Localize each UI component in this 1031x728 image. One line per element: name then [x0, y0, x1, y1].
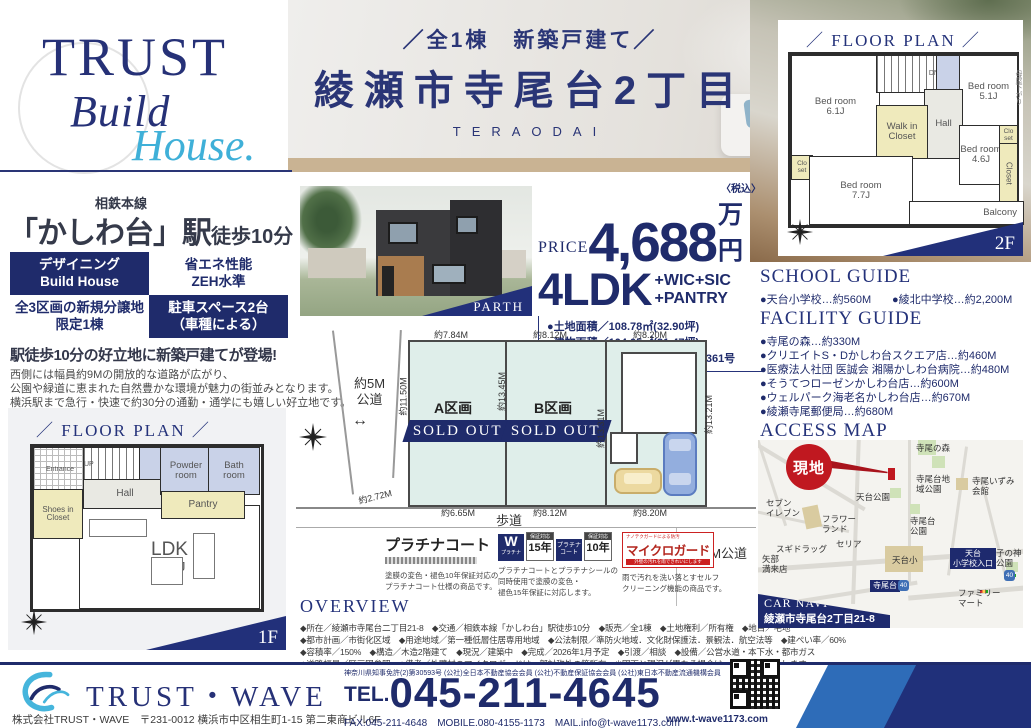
facility-guide-heading: FACILITY GUIDE — [760, 308, 922, 330]
floorplan-2f-heading: FLOOR PLAN — [806, 26, 981, 51]
room-bedroom2: Bed room5.1J — [959, 55, 1018, 129]
dim-c-right: 約13.21M — [702, 395, 715, 434]
station-name-row: 「かしわ台」駅徒歩10分 — [8, 208, 293, 252]
sofa-icon — [89, 519, 147, 537]
map-label-chiikipark: 寺尾台地域公園 — [916, 474, 956, 494]
floorplan-1f-drawing: LDK18.9J Entrance UP Hall Powder room Ba… — [30, 444, 264, 612]
footer-contacts: FAX.045-211-4648 MOBILE.080-4155-1173 MA… — [344, 714, 680, 728]
badge-lots: 全3区画の新規分譲地限定1棟 — [10, 295, 149, 338]
lot-a-label: A区画 — [434, 398, 472, 418]
sidewalk-label: 歩道 — [496, 510, 522, 529]
house-window1 — [388, 222, 418, 244]
lot-a-sold: SOLD OUT — [402, 420, 513, 442]
dim-top-a: 約7.84M — [434, 328, 468, 341]
microguard-desc2: クリーニング機能の商品です。 — [622, 583, 714, 594]
lot-c-porch — [610, 432, 638, 464]
map-label-famima: ファミリー マート — [958, 588, 1001, 608]
w-badge: W プラチナ — [498, 534, 524, 561]
kitchen-icon — [193, 533, 215, 579]
road-left-label: 約5M 公道 — [354, 376, 385, 409]
house-door — [382, 266, 394, 296]
room-walkin-closet: Walk in Closet — [876, 105, 928, 159]
staircase-up: UP — [83, 447, 143, 483]
room-bedroom3: Bed room4.6J — [959, 125, 1003, 185]
site-marker — [888, 468, 895, 480]
room-closet-right: Closet — [999, 143, 1018, 203]
footer-stripe-corner — [980, 665, 1031, 728]
overview-heading: OVERVIEW — [300, 596, 411, 617]
width-arrow-icon: ↔ — [352, 412, 368, 430]
brand-house: House. — [132, 120, 255, 171]
price-amount: 4,688 — [588, 218, 716, 268]
house-window3 — [432, 264, 466, 284]
header-subtitle: ／全1棟 新築戸建て／ — [300, 24, 760, 54]
price-opt2: +PANTRY — [655, 290, 731, 308]
room-entrance: Entrance — [33, 447, 87, 493]
map-label-seria: セリア — [836, 539, 862, 549]
compass-icon — [298, 422, 328, 452]
school-item-1: ●天台小学校…約560M — [760, 291, 871, 307]
room-hall-2f: Hall — [924, 89, 963, 159]
qr-code — [730, 659, 780, 709]
microguard-logo-box: ナノテクガードによる防汚 マイクロガード 外壁の汚れを雨できれいにします — [622, 532, 714, 568]
warranty-platinum: プラチナコート 塗膜の変色・褪色10年保証対応の プラチナコート仕様の商品です。 — [385, 534, 490, 592]
overview-line2: ◆都市計画／市街化区域 ◆用途地域／第一種低層住居専用地域 ◆公法制限／準防火地… — [300, 634, 846, 646]
room-powder: Powder room — [160, 447, 212, 495]
badge-10y: 保証対応 10年 — [584, 532, 612, 561]
map-park — [910, 504, 920, 514]
compass-icon — [20, 608, 48, 636]
footer-company-logo: TRUST・WAVE — [86, 673, 327, 715]
site-circle-label: 現地 — [793, 457, 825, 478]
dim-top-b: 約8.12M — [533, 328, 567, 341]
school-item-2: ●綾北中学校…約2,200M — [892, 291, 1012, 307]
badge-15y: 保証対応 15年 — [526, 532, 554, 561]
car-blue — [663, 432, 697, 496]
warranty-microguard: ナノテクガードによる防汚 マイクロガード 外壁の汚れを雨できれいにします 雨で汚… — [622, 532, 714, 594]
microguard-name: マイクロガード — [626, 540, 710, 559]
map-label-konokami: 子の神 公園 — [996, 548, 1022, 568]
exterior-render: PARTH — [300, 186, 532, 316]
dim-b-right: 約13.31M — [594, 409, 607, 448]
flyer-page: TRUST Build House. ／全1棟 新築戸建て／ 綾瀬市寺尾台2丁目… — [0, 0, 1031, 728]
room-pantry: Pantry — [161, 491, 245, 519]
floorplan-2f-drawing: Bed room6.1J DN Bed room5.1J Hall Walk i… — [788, 52, 1019, 228]
map-badge-teraodai: 寺尾台 — [870, 580, 900, 592]
page-title: 綾瀬市寺尾台2丁目 — [300, 58, 760, 116]
footer-company-address: 株式会社TRUST・WAVE 〒231-0012 横浜市中区相生町1-15 第二… — [12, 712, 381, 727]
header-title-block: ／全1棟 新築戸建て／ 綾瀬市寺尾台2丁目 TERAODAI — [300, 24, 760, 139]
room-bedroom1: Bed room6.1J — [791, 55, 880, 159]
price-opt1: +WIC+SIC — [655, 272, 731, 290]
map-label-seven: セブン イレブン — [766, 498, 800, 518]
access-map: 現地 寺尾の森 寺尾台地域公園 寺尾いずみ会館 天台公園 寺尾台公園 セブン イ… — [758, 440, 1023, 628]
footer-tel-row: TEL. 045-211-4645 — [344, 675, 661, 711]
tel-number: 045-211-4645 — [390, 675, 661, 711]
badge-platinum-coat: プラチナコート — [556, 539, 582, 561]
render-caption: PARTH — [473, 299, 532, 316]
school-guide-heading: SCHOOL GUIDE — [760, 266, 911, 288]
site-plan: 約5M 公道 ↔ A区画 SOLD OUT B区画 SOLD OUT 約7.84… — [296, 330, 756, 530]
overview-line1: ◆所在／綾瀬市寺尾台二丁目21-8 ◆交通／相鉄本線「かしわ台」駅徒歩10分 ◆… — [300, 622, 790, 634]
sidewalk-strip: 歩道 — [296, 507, 756, 528]
warranty-w15: W プラチナ 保証対応 15年 プラチナコート 保証対応 10年 プラチナコート… — [498, 532, 616, 598]
car-navi-address: 綾瀬市寺尾台2丁目21-8 — [758, 611, 890, 626]
floor-label-1f: 1F — [146, 616, 286, 650]
map-label-yabe: 矢部 満来店 — [762, 554, 788, 574]
room-shoes-closet: Shoes in Closet — [33, 489, 83, 539]
badge-parking: 駐車スペース2台（車種による） — [149, 295, 288, 338]
compass-icon — [786, 218, 814, 246]
platinum-desc1: 塗膜の変色・褪色10年保証対応の — [385, 570, 490, 581]
catch-headline: 駅徒歩10分の好立地に新築戸建てが登場! — [10, 344, 277, 365]
price-unit: 万円 — [718, 195, 764, 267]
facility-item: ●綾瀬寺尾郵便局…約680M — [760, 403, 893, 419]
overview-line3: ◆容積率／150% ◆構造／木造2階建て ◆現況／建築中 ◆完成／2026年1月… — [300, 646, 815, 658]
car-beige — [614, 468, 662, 494]
price-ldk: 4LDK — [538, 269, 652, 312]
footer-web: www.t-wave1173.com — [666, 714, 768, 725]
wave-logo-icon — [16, 671, 78, 713]
platinum-coat-bar — [385, 557, 477, 564]
staircase-dn: DN — [876, 55, 940, 93]
station-name: 「かしわ台」駅 — [8, 217, 211, 250]
map-label-tendaisho: 天台小 — [892, 555, 918, 565]
map-label-tendaipark: 天台公園 — [856, 492, 890, 502]
site-circle: 現地 — [786, 444, 832, 490]
station-walk: 徒歩10分 — [211, 226, 293, 248]
microguard-strip: 外壁の汚れを雨できれいにします — [626, 559, 710, 565]
room-hall-1f: Hall — [83, 479, 167, 509]
badge-zeh: 省エネ性能ZEH水準 — [149, 252, 288, 295]
tel-label: TEL. — [344, 683, 390, 711]
brand-name: TRUST — [42, 26, 228, 88]
price-tax: 〈税込〉 — [721, 180, 761, 195]
bg-house-shape — [308, 248, 366, 278]
dim-bot-0: 約2.72M — [357, 486, 393, 507]
map-label-teraodaipark: 寺尾台公園 — [910, 516, 942, 536]
platinum-coat-logo: プラチナコート — [385, 534, 490, 555]
dim-top-c: 約8.20M — [633, 328, 667, 341]
route-shield-icon: 40 — [898, 580, 909, 591]
floorplan-1f-heading: FLOOR PLAN — [36, 416, 211, 441]
footer: TRUST・WAVE 株式会社TRUST・WAVE 〒231-0012 横浜市中… — [0, 665, 1031, 728]
w-desc1: プラチナコートとプラチナシールの — [498, 565, 616, 576]
table-icon — [151, 557, 183, 585]
w-desc3: 褪色15年保証に対応します。 — [498, 587, 616, 598]
brand-logo: TRUST Build House. — [14, 12, 284, 168]
microguard-desc1: 雨で汚れを洗い落とすセルフ — [622, 572, 714, 583]
header-romaji: TERAODAI — [300, 124, 760, 139]
header-underline — [0, 170, 292, 172]
room-bedroom4: Bed room7.7J — [809, 156, 913, 225]
map-label-izumi: 寺尾いずみ会館 — [972, 476, 1016, 496]
platinum-desc2: プラチナコート仕様の商品です。 — [385, 581, 490, 592]
dim-b-left: 約13.45M — [495, 372, 508, 411]
map-label-sugi: スギドラッグ — [776, 544, 827, 554]
map-label-teraonomori: 寺尾の森 — [916, 443, 950, 453]
room-balcony: Balcony — [909, 201, 1024, 225]
lot-c-house-footprint — [621, 352, 697, 434]
map-label-flower: フラワー ランド — [822, 514, 856, 534]
map-park — [890, 488, 901, 498]
map-badge-iriguchi: 天台 小学校入口 — [950, 548, 996, 569]
map-building — [802, 505, 822, 530]
w-desc2: 同時使用で塗膜の変色・ — [498, 576, 616, 587]
map-park — [932, 456, 945, 468]
dim-a-left: 約11.50M — [397, 377, 410, 415]
access-map-heading: ACCESS MAP — [760, 420, 888, 442]
room-bath: Bath room — [208, 447, 260, 495]
floorplan-1f-card: FLOOR PLAN LDK18.9J Entrance UP Hall Pow… — [8, 408, 286, 650]
house-window2 — [456, 216, 478, 234]
lot-b-label: B区画 — [534, 398, 572, 418]
map-building — [956, 478, 968, 490]
price-label: PRICE — [538, 239, 588, 267]
roof-note: 母屋下がり — [1013, 70, 1023, 105]
route-shield-icon: 40 — [1004, 570, 1015, 581]
badge-designing: デザイニングBuild House — [10, 252, 149, 295]
road-line-left2 — [332, 330, 354, 494]
floorplan-2f-card: FLOOR PLAN Bed room6.1J DN Bed room5.1J … — [778, 20, 1023, 256]
